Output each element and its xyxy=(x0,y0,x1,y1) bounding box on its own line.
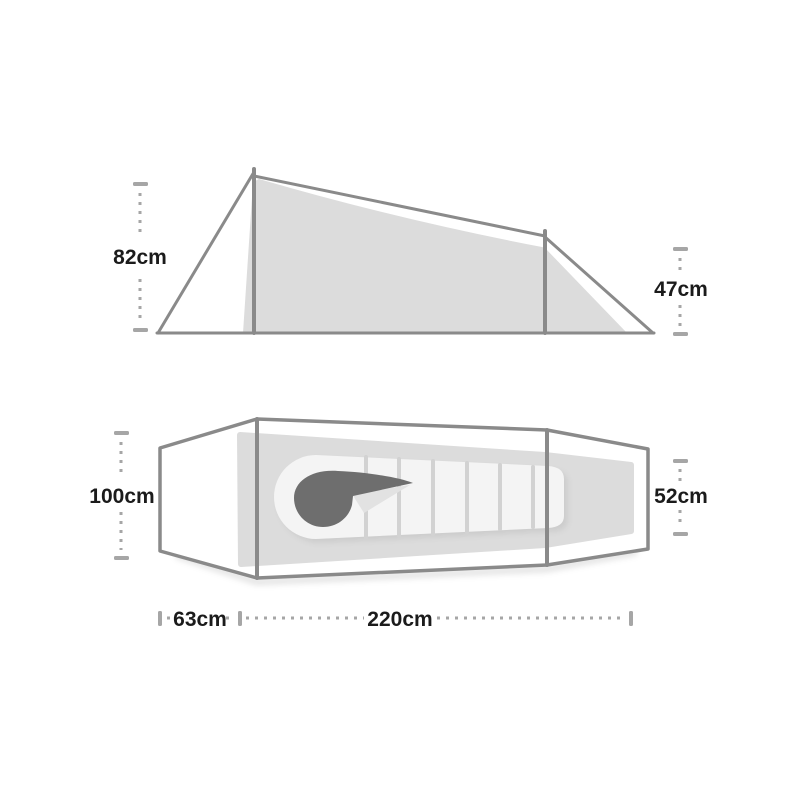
dimension-head-width: 100cm xyxy=(89,431,154,560)
side-view-front-slope-line xyxy=(158,172,254,333)
top-view: 100cm 52cm xyxy=(89,419,708,582)
dimension-tick xyxy=(673,247,688,251)
dimension-foot-width: 52cm xyxy=(654,459,708,536)
side-view-canopy-fill xyxy=(243,179,627,333)
dimension-label-head-width: 100cm xyxy=(89,485,154,508)
dimension-label-rear-height: 47cm xyxy=(654,278,708,301)
dimension-tick xyxy=(238,611,242,626)
tent-dimensions-diagram: 82cm 47cm xyxy=(0,0,800,800)
dimension-tick xyxy=(673,532,688,536)
side-view: 82cm 47cm xyxy=(113,169,708,339)
dimension-tick xyxy=(133,328,148,332)
dimension-tick xyxy=(114,431,129,435)
dimension-label-front-height: 82cm xyxy=(113,246,167,269)
dimension-tick xyxy=(673,332,688,336)
dimension-front-height: 82cm xyxy=(113,182,167,332)
dimension-lengths: 63cm 220cm xyxy=(158,608,633,631)
dimension-label-vestibule-length: 63cm xyxy=(173,608,227,631)
diagram-canvas: 82cm 47cm xyxy=(0,0,800,800)
dimension-label-inner-length: 220cm xyxy=(367,608,432,631)
dimension-tick xyxy=(158,611,162,626)
dimension-tick xyxy=(673,459,688,463)
dimension-label-foot-width: 52cm xyxy=(654,485,708,508)
dimension-rear-height: 47cm xyxy=(654,247,708,336)
dimension-tick xyxy=(629,611,633,626)
dimension-tick xyxy=(133,182,148,186)
dimension-tick xyxy=(114,556,129,560)
